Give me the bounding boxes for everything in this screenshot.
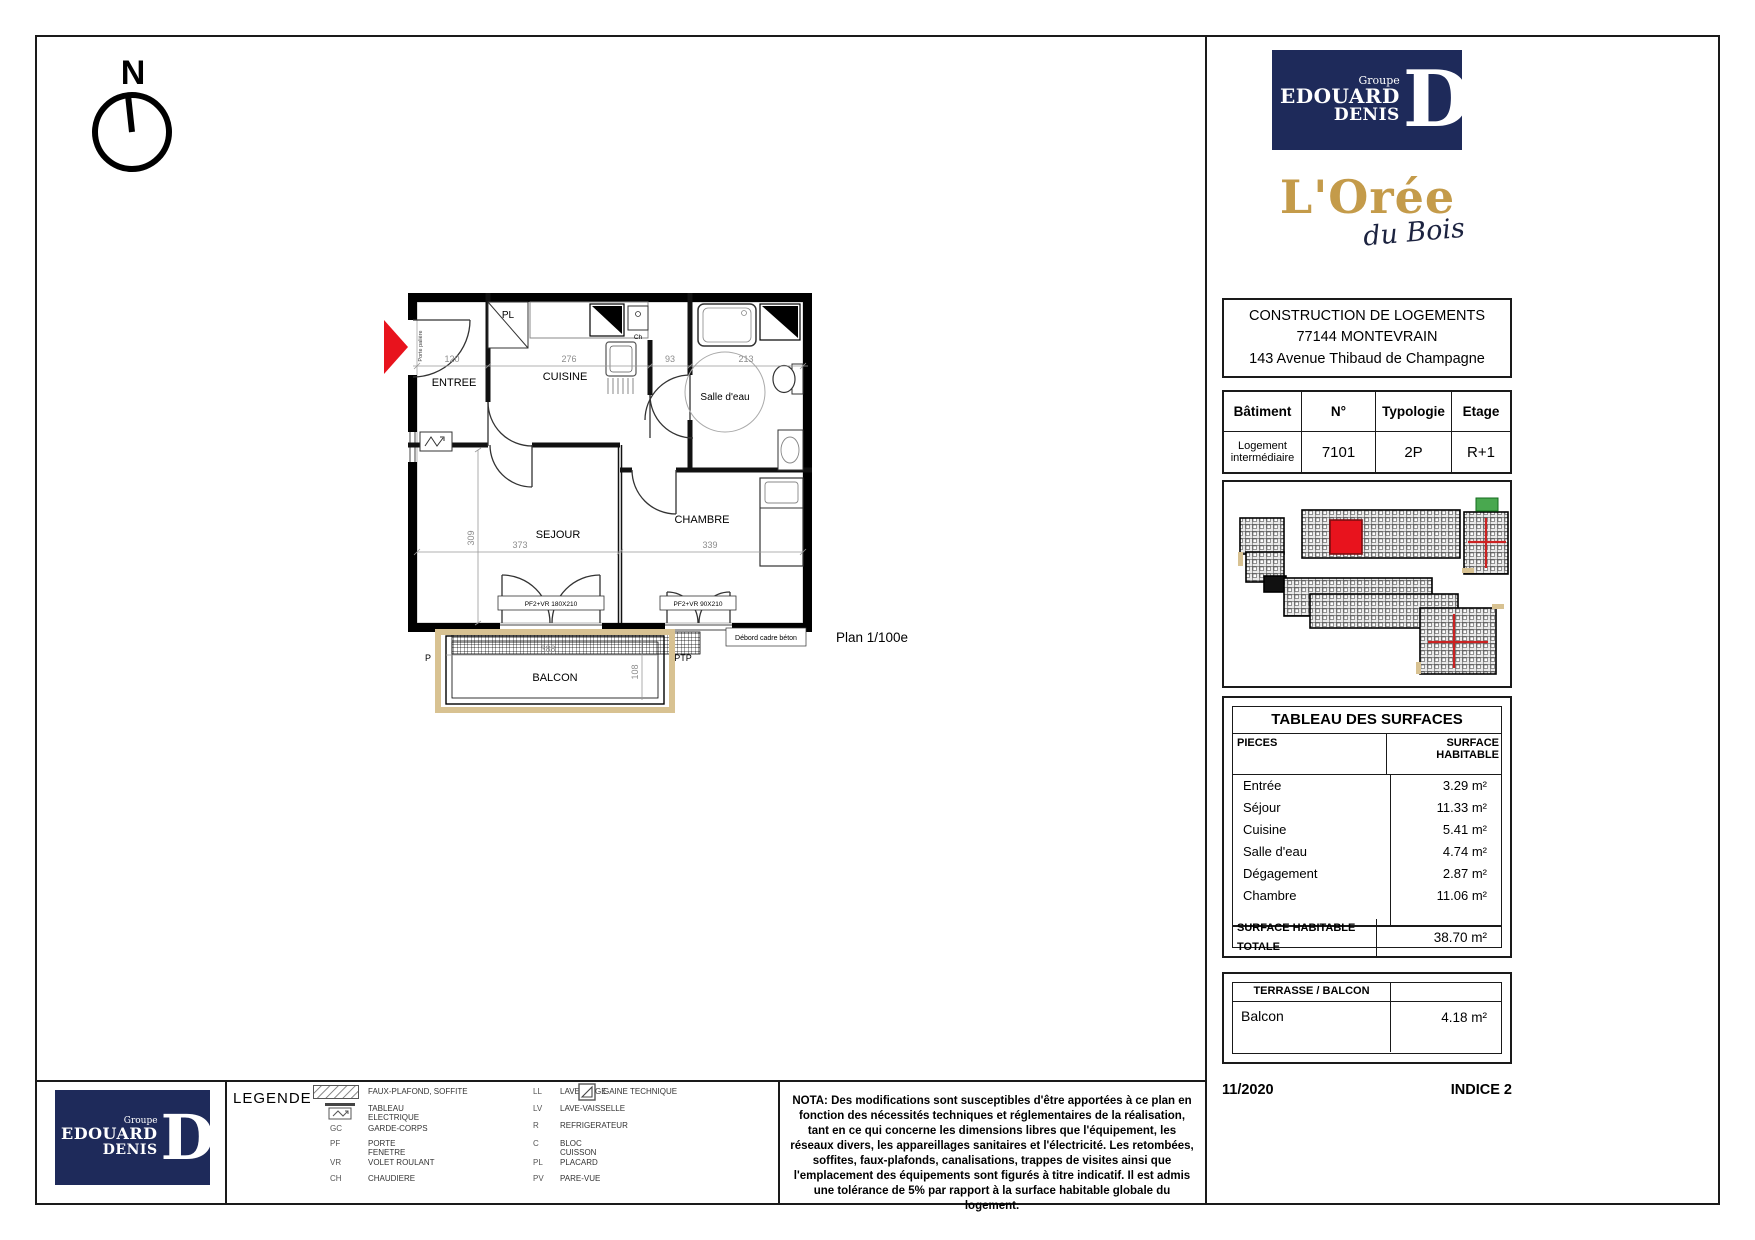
legend-abbr-c: C — [533, 1139, 539, 1148]
legend-abbr-pf: PF — [330, 1139, 340, 1148]
terrasse-area: 4.18 m² — [1391, 1002, 1501, 1052]
svg-text:339: 339 — [702, 540, 717, 550]
surfaces-total-area: 38.70 m² — [1377, 930, 1501, 945]
svg-text:276: 276 — [561, 354, 576, 364]
legend-abbr-gc: GC — [330, 1124, 342, 1133]
logo-monogram: D — [1403, 65, 1471, 135]
footer-cell-divider-2 — [778, 1080, 780, 1205]
svg-text:93: 93 — [665, 354, 675, 364]
legend-pare-vue: PARE-VUE — [560, 1174, 670, 1183]
chambre-window-label: PF2+VR 90X210 — [674, 601, 723, 608]
sejour-label: SEJOUR — [536, 529, 581, 541]
legend-volet-roulant: VOLET ROULANT — [368, 1158, 488, 1167]
north-label: N — [121, 54, 146, 92]
legend-abbr-ch: CH — [330, 1174, 342, 1183]
tableau-electrique-icon — [325, 1102, 355, 1125]
unit-header-numero: N° — [1302, 392, 1376, 432]
chambre-label: CHAMBRE — [674, 514, 729, 526]
legend-abbr-vr: VR — [330, 1158, 341, 1167]
legend-garde-corps: GARDE-CORPS — [368, 1124, 488, 1133]
legend-refrigerateur: REFRIGERATEUR — [560, 1121, 670, 1130]
boiler — [628, 306, 648, 330]
washbasin — [778, 430, 803, 470]
unit-numero: 7101 — [1302, 432, 1376, 472]
entree-label: ENTREE — [432, 377, 477, 389]
balcon-label: BALCON — [532, 672, 577, 684]
legend-abbr-ll: LL — [533, 1087, 542, 1096]
surface-row: Cuisine5.41 m² — [1233, 819, 1501, 841]
plan-sheet: N — [0, 0, 1755, 1240]
legend-chaudiere: CHAUDIERE — [368, 1174, 488, 1183]
surfaces-title: TABLEAU DES SURFACES — [1233, 707, 1501, 734]
surface-row: Séjour11.33 m² — [1233, 797, 1501, 819]
legend-gaine-technique: GAINE TECHNIQUE — [603, 1087, 713, 1096]
logo-denis: DENIS — [1280, 107, 1400, 125]
concrete-overhang-hatch — [452, 632, 700, 654]
footer-edouard-denis-logo: Groupe EDOUARD DENIS D — [55, 1090, 210, 1185]
project-line1: CONSTRUCTION DE LOGEMENTS — [1224, 306, 1510, 327]
residence-logo: L'Orée du Bois — [1245, 170, 1490, 270]
electrical-panel — [420, 432, 452, 451]
terrasse-header: TERRASSE / BALCON — [1233, 983, 1391, 1001]
plan-scale-label: Plan 1/100e — [836, 630, 908, 645]
unit-table: Bâtiment N° Typologie Etage Logement int… — [1222, 390, 1512, 474]
surfaces-col-surface: SURFACE HABITABLE — [1387, 734, 1501, 774]
unit-header-etage: Etage — [1452, 392, 1510, 432]
footer-meta: 11/2020 INDICE 2 — [1222, 1082, 1512, 1098]
footer-cell-divider-1 — [225, 1080, 227, 1205]
north-compass: N — [85, 48, 195, 178]
legend-title: LEGENDE — [233, 1090, 312, 1107]
unit-header-typologie: Typologie — [1376, 392, 1452, 432]
p-label: P — [425, 653, 431, 663]
sejour-window-label: PF2+VR 180X210 — [525, 601, 578, 608]
legend-abbr-pl: PL — [533, 1158, 543, 1167]
project-box: CONSTRUCTION DE LOGEMENTS 77144 MONTEVRA… — [1222, 298, 1512, 378]
legend-lave-vaisselle: LAVE-VAISSELLE — [560, 1104, 670, 1113]
unit-header-batiment: Bâtiment — [1224, 392, 1302, 432]
project-line3: 143 Avenue Thibaud de Champagne — [1224, 349, 1510, 370]
sidebar-divider — [1205, 35, 1207, 1205]
highlighted-unit — [1330, 520, 1362, 554]
surface-row: Salle d'eau4.74 m² — [1233, 841, 1501, 863]
legend-porte-fenetre: PORTE FENETRE — [368, 1139, 428, 1157]
floor-plan: Porte palière PL Ch — [380, 280, 940, 800]
placard — [488, 302, 528, 348]
plan-indice: INDICE 2 — [1451, 1082, 1512, 1098]
shower — [698, 304, 756, 346]
boiler-label: Ch — [634, 334, 643, 341]
terrasse-table: TERRASSE / BALCON Balcon 4.18 m² — [1222, 972, 1512, 1064]
legend-tableau-electrique: TABLEAU ELECTRIQUE — [368, 1104, 438, 1122]
unit-typologie: 2P — [1376, 432, 1452, 472]
entrance-arrow — [384, 320, 408, 374]
gaine-technique-icon — [578, 1083, 596, 1106]
svg-text:373: 373 — [512, 540, 527, 550]
legend-abbr-lv: LV — [533, 1104, 542, 1113]
salle-deau-label: Salle d'eau — [700, 392, 749, 403]
svg-text:213: 213 — [738, 354, 753, 364]
project-line2: 77144 MONTEVRAIN — [1224, 327, 1510, 348]
placard-label: PL — [502, 310, 515, 321]
legend-faux-plafond: FAUX-PLAFOND, SOFFITE — [368, 1087, 488, 1096]
bed — [760, 478, 803, 566]
porte-paliere-label: Porte palière — [418, 330, 424, 361]
svg-text:120: 120 — [444, 354, 459, 364]
surface-row: Chambre11.06 m² — [1233, 885, 1501, 907]
legend-bloc-cuisson: BLOC CUISSON — [560, 1139, 610, 1157]
surface-row: Entrée3.29 m² — [1233, 775, 1501, 797]
nota-text: NOTA: Des modifications sont susceptible… — [790, 1094, 1194, 1214]
plan-date: 11/2020 — [1222, 1082, 1274, 1098]
toilet — [773, 364, 803, 394]
site-key-plan — [1222, 480, 1512, 688]
unit-batiment: Logement intermédiaire — [1224, 432, 1302, 472]
debord-label: Débord cadre béton — [735, 635, 797, 642]
cuisine-label: CUISINE — [543, 371, 588, 383]
edouard-denis-logo: Groupe EDOUARD DENIS D — [1272, 50, 1462, 150]
surface-row: Dégagement2.87 m² — [1233, 863, 1501, 885]
legend-abbr-r: R — [533, 1121, 539, 1130]
gaine-tile-bath — [760, 304, 800, 340]
logo-edouard: EDOUARD — [1280, 86, 1400, 107]
surfaces-col-pieces: PIECES — [1233, 734, 1387, 774]
svg-text:108: 108 — [630, 664, 640, 679]
legend-abbr-pv: PV — [533, 1174, 544, 1183]
svg-text:388: 388 — [540, 644, 555, 654]
terrasse-name: Balcon — [1233, 1002, 1391, 1052]
svg-text:309: 309 — [466, 530, 476, 545]
ptp-label: PTP — [674, 653, 692, 663]
legend-placard: PLACARD — [560, 1158, 670, 1167]
surfaces-table: TABLEAU DES SURFACES PIECES SURFACE HABI… — [1222, 696, 1512, 958]
compass-needle — [128, 95, 132, 132]
gaine-tile-kitchen — [590, 304, 624, 336]
unit-etage: R+1 — [1452, 432, 1510, 472]
footer-divider — [35, 1080, 1207, 1082]
